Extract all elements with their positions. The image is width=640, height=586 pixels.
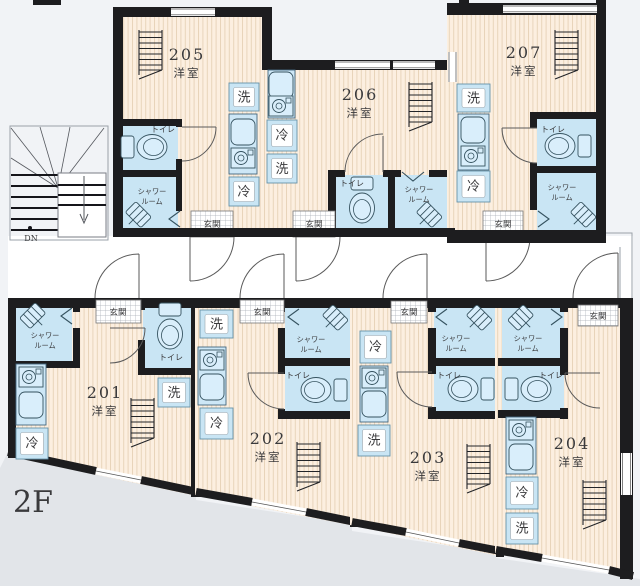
- room-203-type: 洋室: [415, 469, 442, 483]
- washer-box: 洗: [267, 154, 297, 183]
- washer-box: 洗: [358, 425, 390, 456]
- room-205-number: 205: [169, 45, 206, 64]
- washer-box: 洗: [158, 378, 190, 407]
- svg-text:冷: 冷: [275, 129, 288, 144]
- washer-icon: [269, 96, 293, 116]
- fridge-box: 冷: [200, 408, 233, 439]
- svg-text:冷: 冷: [25, 437, 38, 452]
- toilet-icon: [301, 378, 347, 403]
- washer-icon: [509, 420, 533, 440]
- toilet-label: トイレ: [286, 371, 310, 380]
- fridge-box: 冷: [267, 120, 297, 151]
- stair-down-label: DN: [24, 234, 37, 243]
- svg-text:冷: 冷: [210, 417, 223, 432]
- svg-text:洗: 洗: [237, 91, 250, 106]
- sink-icon: [461, 117, 485, 143]
- shower-label: シャワー: [297, 335, 326, 344]
- washer-icon: [231, 148, 255, 168]
- room-207-type: 洋室: [511, 64, 538, 78]
- floor-label: 2F: [13, 485, 53, 520]
- svg-text:冷: 冷: [369, 340, 382, 355]
- toilet-icon: [448, 377, 494, 402]
- sink-icon: [362, 391, 386, 417]
- washer-icon: [200, 350, 224, 370]
- washer-box: 洗: [457, 84, 490, 112]
- sink-icon: [509, 444, 533, 470]
- floorplan-page: DN 洗 冷 玄関: [0, 0, 640, 586]
- washer-box: 洗: [200, 310, 233, 338]
- toilet-icon: [158, 303, 183, 349]
- toilet-label: トイレ: [151, 125, 175, 134]
- roof-outline-dash: [33, 0, 61, 5]
- fridge-box: 冷: [360, 331, 391, 363]
- shower-label: シャワー: [138, 187, 167, 196]
- toilet-label: トイレ: [437, 371, 461, 380]
- room-206-number: 206: [342, 85, 379, 104]
- fridge-box: 冷: [16, 428, 48, 459]
- toilet-label: トイレ: [340, 179, 364, 188]
- washer-icon: [362, 368, 386, 388]
- sink-icon: [269, 72, 293, 98]
- entrance-genkan: 玄関: [578, 305, 618, 326]
- washer-icon: [461, 146, 485, 166]
- shower-label: ルーム: [300, 345, 321, 354]
- window: [171, 8, 215, 16]
- svg-text:冷: 冷: [237, 185, 250, 200]
- svg-text:洗: 洗: [167, 386, 180, 401]
- shower-label: ルーム: [517, 344, 538, 353]
- svg-text:冷: 冷: [515, 486, 528, 501]
- room-206-type: 洋室: [347, 106, 374, 120]
- shower-label: シャワー: [405, 185, 434, 194]
- toilet-label: トイレ: [159, 353, 183, 362]
- room-201-number: 201: [87, 383, 124, 402]
- fridge-box: 冷: [457, 171, 490, 202]
- shower-label: ルーム: [445, 344, 466, 353]
- stair-start-dot: [28, 226, 32, 230]
- svg-text:洗: 洗: [515, 522, 528, 537]
- svg-text:洗: 洗: [275, 162, 288, 177]
- svg-text:玄関: 玄関: [253, 307, 270, 318]
- room-205-type: 洋室: [174, 66, 201, 80]
- shower-label: シャワー: [442, 334, 471, 343]
- svg-text:洗: 洗: [210, 318, 223, 333]
- shower-label: シャワー: [548, 183, 577, 192]
- room-204-type: 洋室: [559, 455, 586, 469]
- corridor-floor: [8, 236, 633, 298]
- unit-203: 冷 洗 玄関 トイレ シャワー ルーム 203 洋室: [350, 254, 504, 557]
- svg-text:玄関: 玄関: [589, 311, 606, 322]
- toilet-icon: [505, 377, 551, 402]
- svg-text:冷: 冷: [467, 180, 480, 195]
- room-202-type: 洋室: [255, 450, 282, 464]
- svg-text:玄関: 玄関: [400, 307, 417, 318]
- shower-label: シャワー: [31, 331, 60, 340]
- shower-label: ルーム: [141, 197, 162, 206]
- washer-box: 洗: [229, 83, 259, 111]
- room-202-number: 202: [250, 429, 287, 448]
- svg-text:洗: 洗: [467, 92, 480, 107]
- room-201-type: 洋室: [92, 404, 119, 418]
- toilet-icon: [121, 135, 167, 160]
- washer-box: 洗: [506, 513, 538, 544]
- svg-text:玄関: 玄関: [494, 219, 511, 230]
- entrance-genkan: 玄関: [391, 301, 427, 323]
- shower-label: ルーム: [408, 195, 429, 204]
- shower-label: ルーム: [34, 341, 55, 350]
- svg-text:洗: 洗: [367, 434, 380, 449]
- entrance-genkan: 玄関: [240, 300, 284, 323]
- toilet-label: トイレ: [539, 371, 563, 380]
- toilet-icon: [545, 134, 591, 159]
- room-207-number: 207: [506, 43, 543, 62]
- unit-204: 冷 洗 玄関 トイレ シャワー ルーム 204 洋室: [495, 253, 633, 579]
- window: [621, 453, 632, 495]
- room-204-number: 204: [554, 434, 591, 453]
- sink-icon: [19, 392, 43, 418]
- washer-icon: [19, 367, 43, 387]
- toilet-label: トイレ: [541, 125, 565, 134]
- shower-label: ルーム: [551, 193, 572, 202]
- floorplan-svg: DN 洗 冷 玄関: [0, 0, 640, 586]
- room-203-number: 203: [410, 448, 447, 467]
- sink-icon: [231, 119, 255, 145]
- fridge-box: 冷: [506, 477, 538, 509]
- entrance-genkan: 玄関: [96, 300, 141, 323]
- sink-icon: [200, 374, 224, 400]
- shower-label: シャワー: [514, 334, 543, 343]
- fridge-box: 冷: [229, 177, 259, 206]
- window: [335, 61, 435, 69]
- svg-text:玄関: 玄関: [109, 307, 126, 318]
